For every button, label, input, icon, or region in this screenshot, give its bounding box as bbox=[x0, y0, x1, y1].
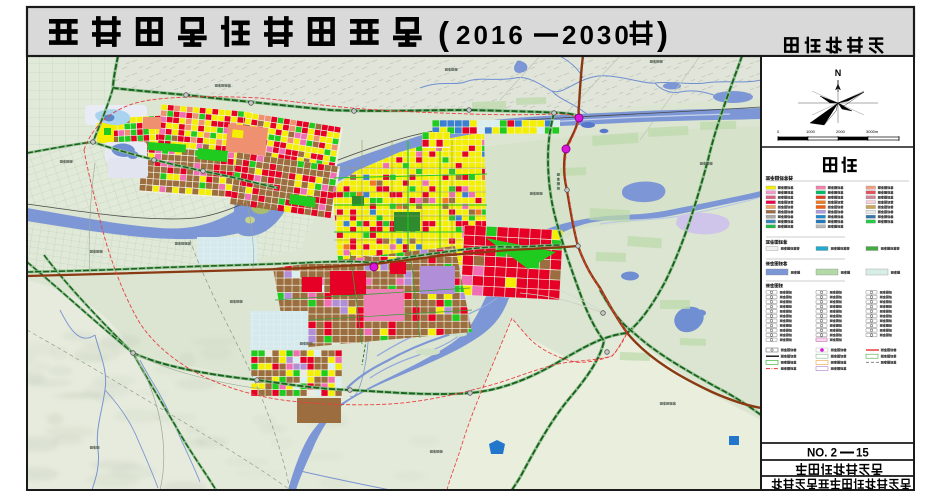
svg-text:15: 15 bbox=[856, 448, 869, 460]
svg-text:): ) bbox=[657, 15, 668, 52]
svg-text:(: ( bbox=[438, 15, 449, 52]
svg-text:NO. 2: NO. 2 bbox=[807, 448, 837, 460]
svg-text:2000: 2000 bbox=[836, 129, 846, 134]
svg-text:2030: 2030 bbox=[562, 20, 632, 50]
svg-text:N: N bbox=[835, 68, 842, 78]
svg-text:3000m: 3000m bbox=[866, 129, 879, 134]
svg-text:2016: 2016 bbox=[456, 20, 526, 50]
svg-text:1000: 1000 bbox=[806, 129, 816, 134]
